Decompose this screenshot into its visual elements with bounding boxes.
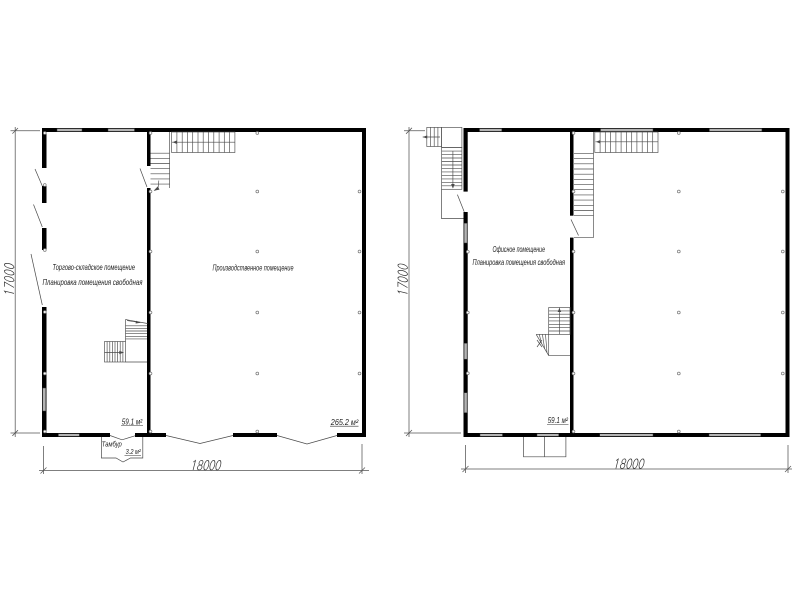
svg-text:Планировка помещения свободная: Планировка помещения свободная — [473, 257, 566, 267]
svg-text:Тамбур: Тамбур — [102, 439, 122, 448]
svg-text:3.2 м²: 3.2 м² — [126, 447, 142, 456]
svg-text:265.2 м²: 265.2 м² — [330, 418, 359, 427]
svg-text:59.1 м²: 59.1 м² — [122, 417, 143, 426]
svg-text:Торгово-складское помещение: Торгово-складское помещение — [53, 262, 136, 272]
svg-text:Офисное помещение: Офисное помещение — [493, 244, 546, 254]
svg-text:Производственное помещение: Производственное помещение — [213, 263, 294, 273]
svg-text:Планировка помещения свободная: Планировка помещения свободная — [43, 277, 143, 287]
svg-text:59.1 м²: 59.1 м² — [548, 416, 569, 425]
